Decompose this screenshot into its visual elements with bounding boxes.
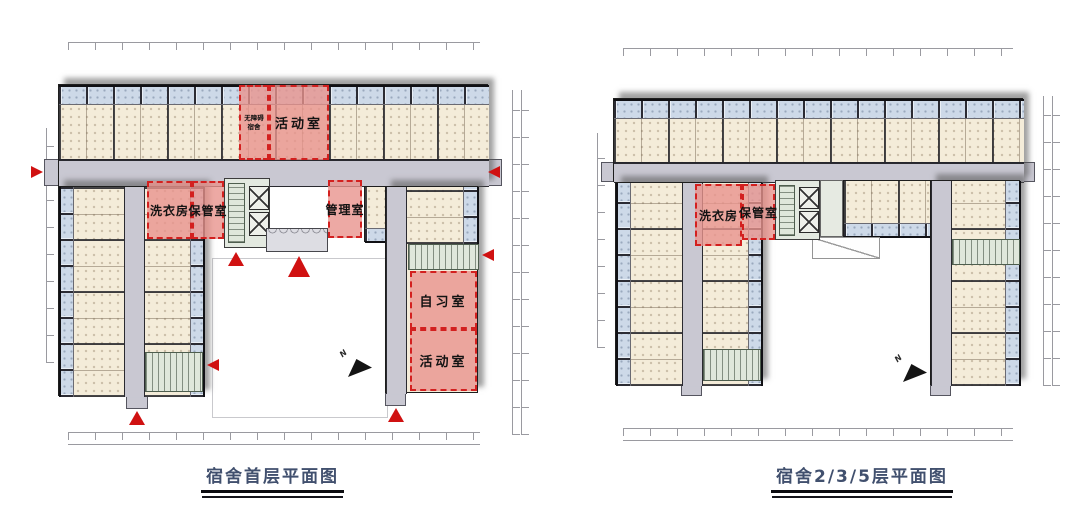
staircase-icon: [145, 352, 203, 392]
bathroom-pods-strip: [59, 187, 74, 397]
dimension-line-right-outer: [1052, 96, 1060, 386]
north-arrow-triangle: [348, 359, 372, 377]
plan-upper-floors: 洗衣房 保管室 N: [575, 38, 1075, 468]
dimension-line-top: [68, 42, 480, 50]
north-wing: 无障碍宿舍 活动室: [58, 84, 488, 186]
dimension-line-top: [623, 48, 1013, 56]
main-corridor: [59, 160, 489, 187]
room-label-activity-north: 活动室: [275, 113, 323, 132]
dimension-line-bottom: [68, 432, 480, 440]
north-arrow-icon: N: [897, 358, 927, 384]
room-label-activity-wing: 活动室: [419, 351, 467, 370]
entrance-arrow-stair-east-icon: [482, 249, 494, 261]
stair-elevator-core: [224, 178, 270, 248]
dorm-rooms-strip: [844, 181, 931, 223]
north-label: N: [893, 353, 904, 364]
caption-first-floor: 宿舍首层平面图: [202, 462, 343, 498]
dorm-rooms-strip: [614, 119, 1024, 163]
room-storage: 保管室: [192, 181, 224, 239]
north-arrow-triangle: [903, 364, 927, 382]
room-label-laundry: 洗衣房: [699, 207, 738, 224]
staircase-icon: [228, 183, 245, 243]
wing-corridor: [124, 187, 145, 397]
room-label-accessible-dorm: 无障碍宿舍: [244, 114, 265, 130]
room-label-management: 管理室: [326, 201, 365, 218]
room-label-laundry: 洗衣房: [150, 202, 189, 219]
bathroom-pods-strip: [844, 223, 931, 238]
entrance-arrow-west-icon: [31, 166, 43, 178]
dorm-rooms-strip: [631, 183, 682, 386]
east-wing: 自习室 活动室: [385, 186, 478, 393]
dorm-rooms-strip: [407, 187, 463, 244]
dorm-rooms-strip: [74, 187, 124, 397]
room-activity-north: 活动室: [269, 85, 329, 160]
dimension-line-bottom-total: [68, 444, 480, 452]
room-label-study: 自习室: [419, 291, 467, 310]
dimension-line-right-inner: [1043, 96, 1051, 386]
entrance-arrow-stair-west-icon: [207, 359, 219, 371]
room-management: 管理室: [328, 180, 362, 238]
east-wing: [930, 180, 1020, 385]
room-label-storage: 保管室: [739, 204, 778, 221]
main-entrance-canopy: [266, 228, 328, 252]
elevator-icon: [799, 187, 819, 209]
bathroom-pods-strip: [616, 183, 631, 386]
stair-elevator-core: [775, 180, 820, 240]
bathroom-pods-strip: [1005, 181, 1021, 386]
plan-first-floor: 无障碍宿舍 活动室 洗衣房 保管室: [30, 28, 540, 463]
lobby-vestibule: [820, 180, 843, 237]
north-wing: [613, 98, 1023, 182]
staircase-icon: [703, 349, 761, 381]
dimension-line-right-outer: [521, 90, 529, 435]
elevator-icon: [249, 186, 269, 210]
bathroom-pods-strip: [463, 187, 479, 244]
room-storage: 保管室: [742, 184, 775, 240]
room-activity-wing: 活动室: [410, 329, 477, 391]
main-entrance-arrow-icon: [288, 256, 310, 277]
wing-corridor: [931, 181, 952, 386]
north-arrow-icon: N: [342, 353, 372, 379]
entrance-canopy-roof: [812, 237, 880, 259]
staircase-icon: [408, 244, 479, 270]
entrance-arrow-east-icon: [488, 166, 500, 178]
elevator-icon: [799, 211, 819, 233]
dimension-line-right-inner: [512, 90, 520, 435]
staircase-icon: [779, 185, 795, 236]
bathroom-pods-strip: [614, 99, 1024, 119]
room-study: 自习室: [410, 271, 477, 329]
floor-plan-sheet: 无障碍宿舍 活动室 洗衣房 保管室: [0, 0, 1080, 521]
entrance-arrow-core-icon: [228, 252, 244, 266]
room-laundry: 洗衣房: [695, 184, 742, 246]
courtyard-outline: [212, 258, 388, 418]
caption-upper-floors: 宿舍2/3/5层平面图: [772, 462, 952, 498]
room-label-storage: 保管室: [189, 202, 228, 219]
exit-arrow-south-west-icon: [129, 411, 145, 425]
room-laundry: 洗衣房: [147, 181, 192, 239]
exit-arrow-south-east-icon: [388, 408, 404, 422]
center-rooms: [843, 180, 930, 237]
dorm-rooms-strip: [952, 181, 1005, 386]
staircase-icon: [952, 239, 1020, 265]
dimension-line-bottom: [623, 428, 1013, 436]
dimension-line-bottom-total: [623, 440, 1013, 448]
wing-corridor: [386, 187, 407, 394]
room-accessible-dorm: 无障碍宿舍: [239, 85, 269, 160]
